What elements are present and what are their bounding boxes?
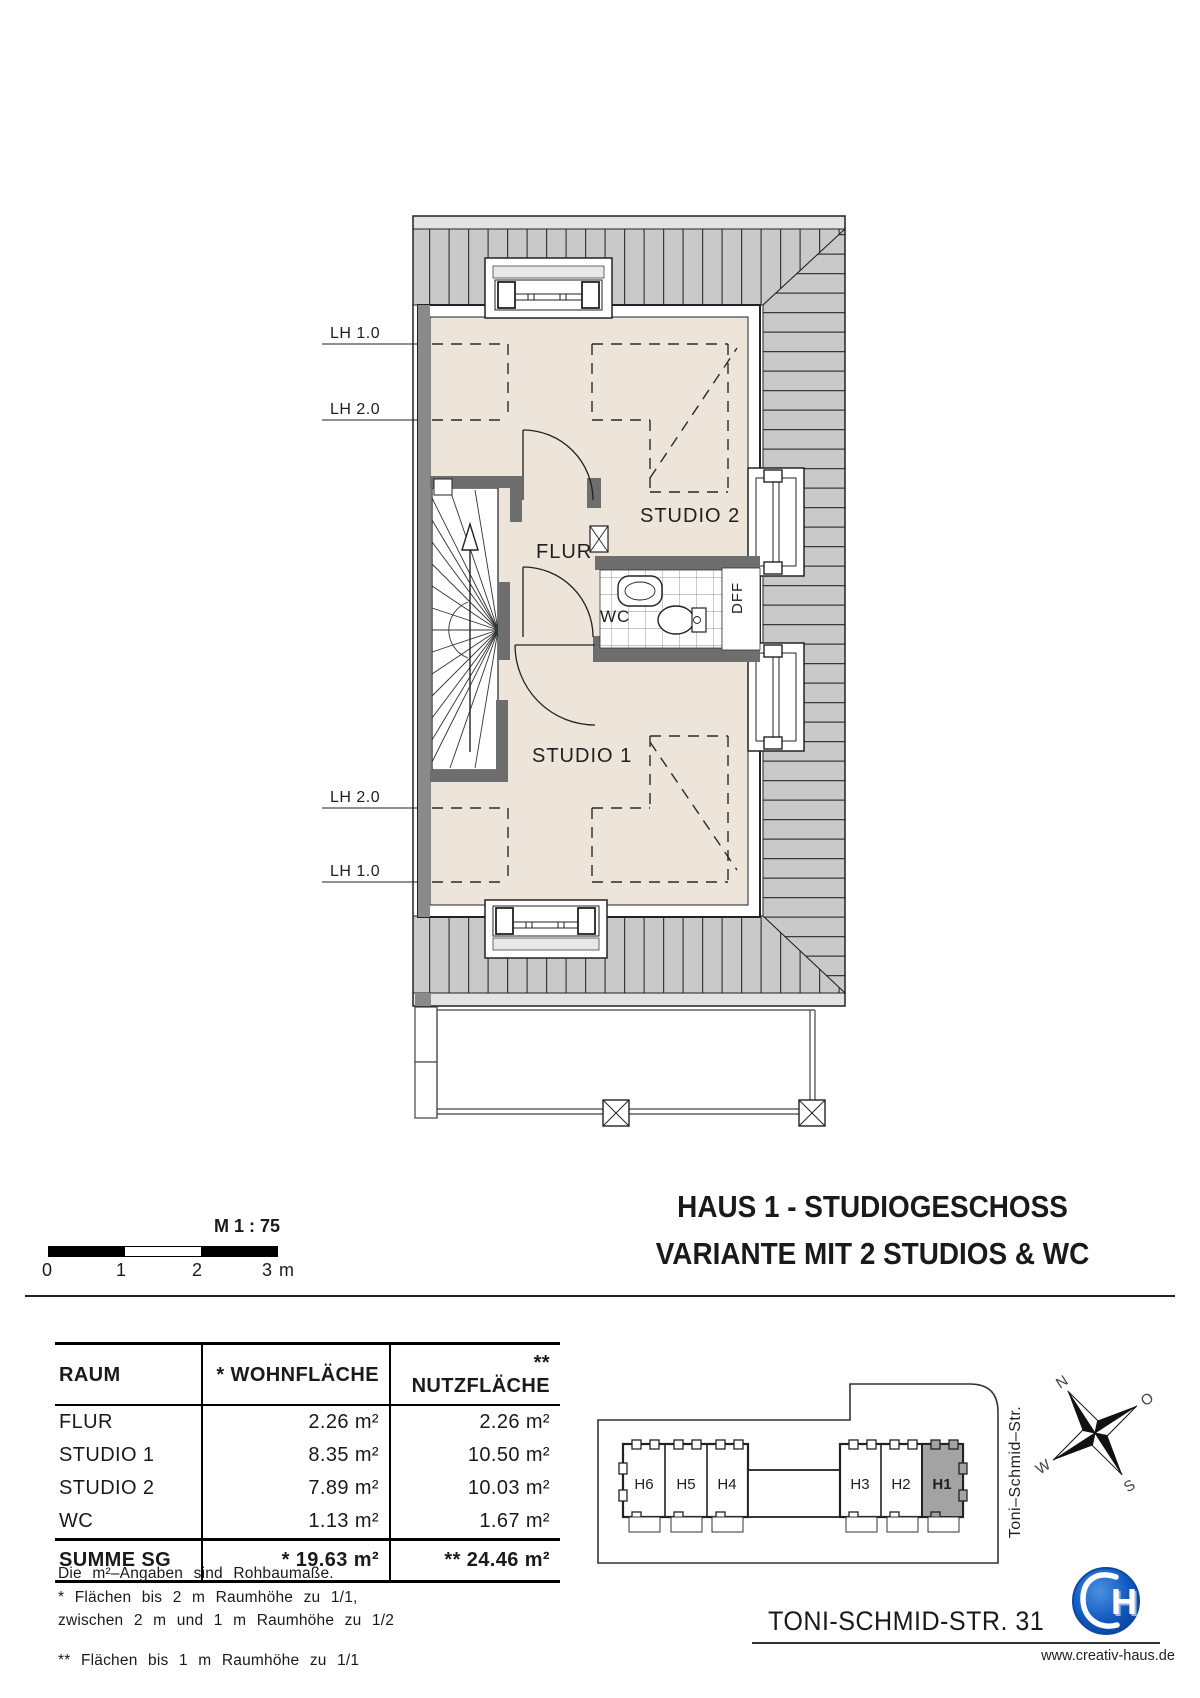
compass-label-n: N — [1053, 1372, 1071, 1392]
compass-rose-icon: N O S W — [999, 1338, 1191, 1531]
house-label-h3: H3 — [850, 1476, 869, 1493]
table-row: FLUR 2.26 m² 2.26 m² — [55, 1405, 560, 1439]
table-row: STUDIO 1 8.35 m² 10.50 m² — [55, 1439, 560, 1472]
compass-label-o: O — [1138, 1389, 1157, 1410]
scale-tick-1: 1 — [116, 1260, 127, 1281]
scale-tick-0: 0 — [42, 1260, 53, 1281]
plan-sheet: { "plan": { "rooms": {"studio2":"STUDIO … — [0, 0, 1200, 1698]
cell-summary-nutzflaeche: ** 24.46 m² — [390, 1540, 560, 1582]
footnote-4: ** Flächen bis 1 m Raumhöhe zu 1/1 — [58, 1652, 359, 1670]
table-row: STUDIO 2 7.89 m² 10.03 m² — [55, 1472, 560, 1505]
cell-nutzflaeche: 1.67 m² — [390, 1505, 560, 1540]
house-connector — [748, 1470, 840, 1517]
lh-label-bottom-2: LH 2.0 — [330, 789, 380, 806]
address-label: TONI-SCHMID-STR. 31 — [768, 1606, 1044, 1637]
drawing-title: HAUS 1 - STUDIOGESCHOSS VARIANTE MIT 2 S… — [627, 1183, 1118, 1277]
cell-room: STUDIO 1 — [55, 1439, 202, 1472]
footnote-3: zwischen 2 m und 1 m Raumhöhe zu 1/2 — [58, 1612, 394, 1630]
terrace-posts — [603, 1100, 825, 1126]
footnote-1: Die m²–Angaben sind Rohbaumaße. — [58, 1565, 334, 1583]
wall-notch — [434, 479, 452, 495]
cell-nutzflaeche: 10.03 m² — [390, 1472, 560, 1505]
street-label-vertical: Toni–Schmid–Str. — [1007, 1406, 1024, 1539]
house-label-h5: H5 — [676, 1476, 695, 1493]
room-label-studio1: STUDIO 1 — [532, 745, 632, 767]
house-label-h1: H1 — [932, 1476, 951, 1493]
room-label-dff: DFF — [729, 582, 746, 614]
cell-wohnflaeche: 7.89 m² — [202, 1472, 390, 1505]
compass-label-w: W — [1033, 1456, 1055, 1478]
wc-toilet — [658, 606, 706, 634]
cell-nutzflaeche: 2.26 m² — [390, 1405, 560, 1439]
roof-fascia-bottom — [413, 993, 845, 1006]
cell-room: STUDIO 2 — [55, 1472, 202, 1505]
floorplan-drawing: STUDIO 2 FLUR WC DFF STUDIO 1 LH 1.0 LH … — [280, 190, 860, 1140]
siteplan-drawing: H6 H5 H4 H3 H2 H1 Toni–Schmid–Str. N O S… — [540, 1320, 1200, 1698]
roof-fascia-top — [413, 216, 845, 229]
cell-room: WC — [55, 1505, 202, 1540]
room-label-flur: FLUR — [536, 541, 592, 563]
cell-wohnflaeche: 1.13 m² — [202, 1505, 390, 1540]
col-header-wohnflaeche: * WOHNFLÄCHE — [202, 1344, 390, 1406]
room-label-wc: WC — [600, 607, 630, 626]
lh-label-top-2: LH 2.0 — [330, 401, 380, 418]
lh-label-bottom-1: LH 1.0 — [330, 863, 380, 880]
svg-text:H: H — [1111, 1581, 1137, 1622]
col-header-raum: RAUM — [55, 1344, 202, 1406]
room-label-studio2: STUDIO 2 — [640, 505, 740, 527]
house-label-h2: H2 — [891, 1476, 910, 1493]
title-line-1: HAUS 1 - STUDIOGESCHOSS — [627, 1183, 1118, 1230]
house-label-h6: H6 — [634, 1476, 653, 1493]
area-table: RAUM * WOHNFLÄCHE ** NUTZFLÄCHE FLUR 2.2… — [55, 1342, 560, 1583]
scale-bar — [48, 1246, 278, 1257]
wall-end-block — [415, 993, 431, 1006]
roof-hatch-right — [763, 229, 845, 993]
left-party-wall — [418, 305, 430, 917]
table-header-row: RAUM * WOHNFLÄCHE ** NUTZFLÄCHE — [55, 1344, 560, 1406]
compass-label-s: S — [1121, 1476, 1139, 1496]
dormer-bottom — [485, 900, 607, 958]
footnote-2: * Flächen bis 2 m Raumhöhe zu 1/1, — [58, 1589, 358, 1607]
section-divider — [25, 1295, 1175, 1297]
scale-tick-2: 2 — [192, 1260, 203, 1281]
wc-sink — [618, 576, 662, 606]
stairs — [432, 488, 498, 770]
house-label-h4: H4 — [717, 1476, 736, 1493]
cell-wohnflaeche: 8.35 m² — [202, 1439, 390, 1472]
cell-room: FLUR — [55, 1405, 202, 1439]
logo-url: www.creativ-haus.de — [1040, 1648, 1175, 1664]
lh-label-top-1: LH 1.0 — [330, 325, 380, 342]
creativ-haus-logo-icon: H H — [1073, 1568, 1139, 1634]
table-row: WC 1.13 m² 1.67 m² — [55, 1505, 560, 1540]
col-header-nutzflaeche: ** NUTZFLÄCHE — [390, 1344, 560, 1406]
cell-nutzflaeche: 10.50 m² — [390, 1439, 560, 1472]
title-line-2: VARIANTE MIT 2 STUDIOS & WC — [627, 1230, 1118, 1277]
cell-wohnflaeche: 2.26 m² — [202, 1405, 390, 1439]
dormer-top — [485, 258, 612, 318]
scale-label: M 1 : 75 — [170, 1216, 280, 1237]
scale-tick-3: 3 m — [262, 1260, 295, 1281]
chimney — [590, 526, 608, 552]
